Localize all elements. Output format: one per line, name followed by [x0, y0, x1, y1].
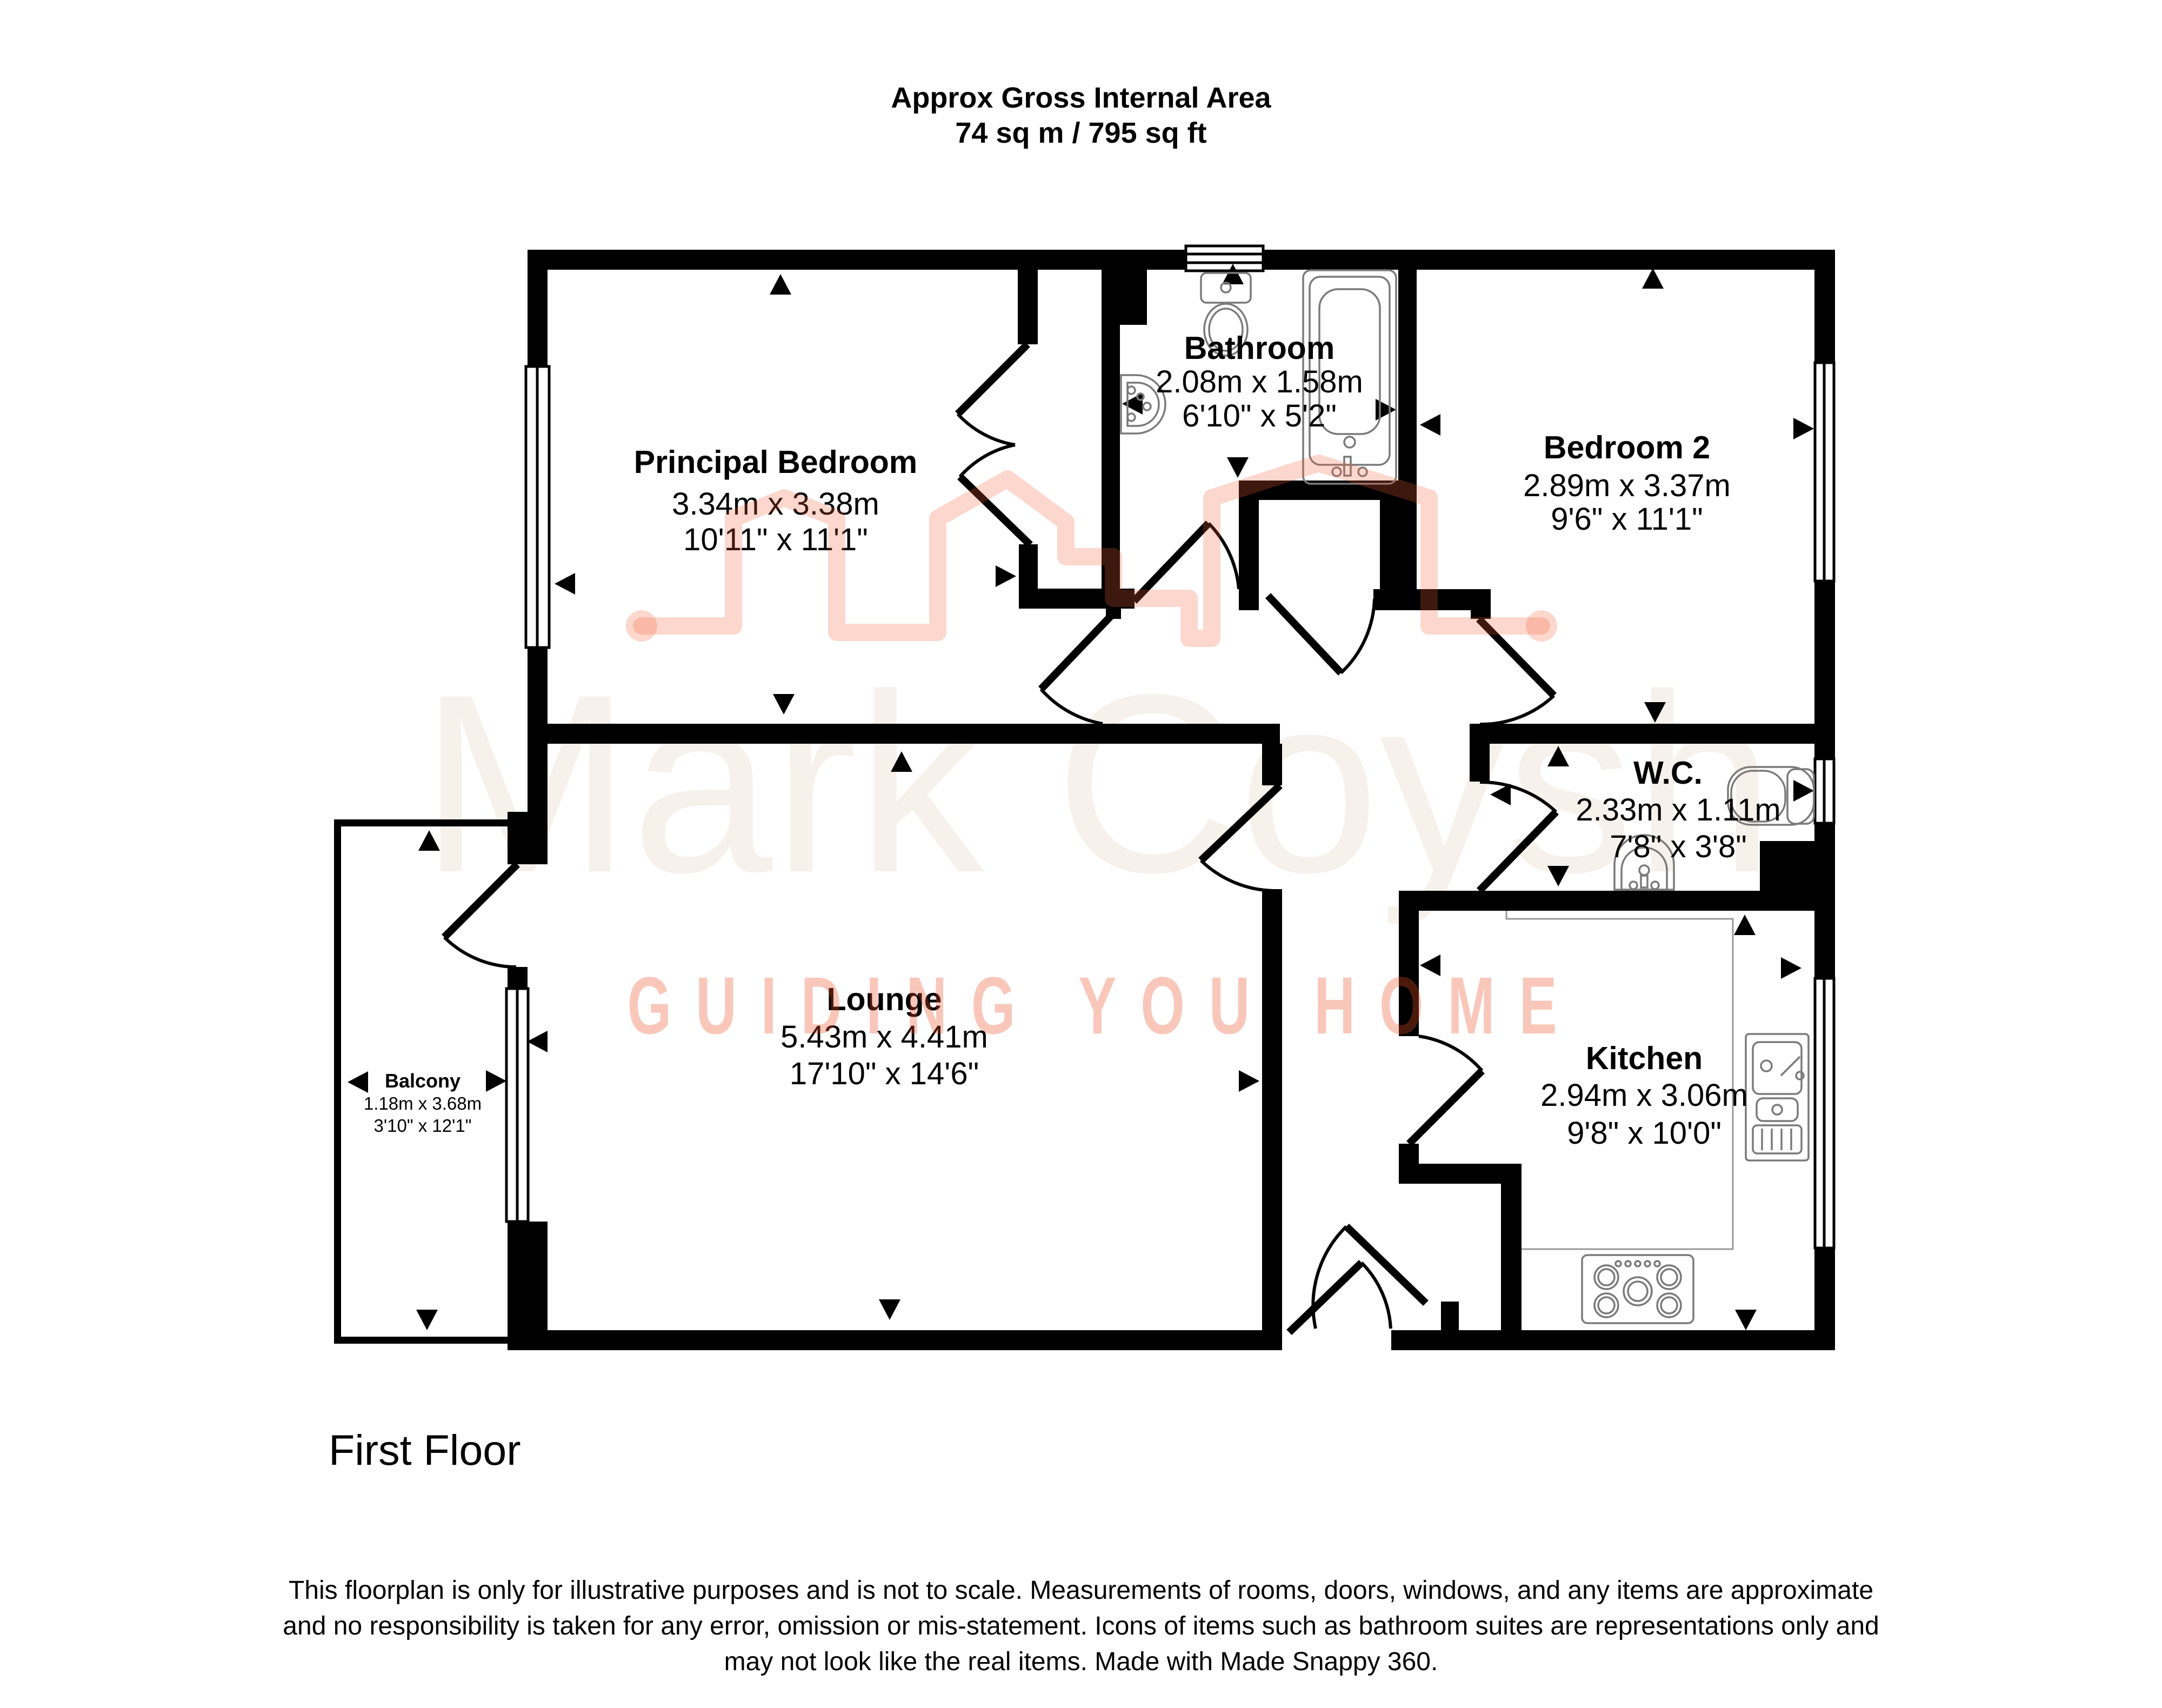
svg-text:may not look like the real ite: may not look like the real items. Made w… — [724, 1647, 1438, 1676]
svg-text:74 sq m / 795 sq ft: 74 sq m / 795 sq ft — [955, 117, 1206, 149]
svg-text:2.08m x 1.58m: 2.08m x 1.58m — [1156, 364, 1363, 399]
svg-text:1.18m x 3.68m: 1.18m x 3.68m — [364, 1093, 482, 1113]
svg-text:Bathroom: Bathroom — [1184, 330, 1335, 366]
svg-text:and no responsibility is taken: and no responsibility is taken for any e… — [283, 1612, 1879, 1640]
svg-text:Mark Coysh: Mark Coysh — [419, 642, 1774, 927]
svg-text:This floorplan is only for ill: This floorplan is only for illustrative … — [289, 1576, 1873, 1605]
svg-text:17'10" x 14'6": 17'10" x 14'6" — [790, 1056, 979, 1091]
svg-text:W.C.: W.C. — [1633, 755, 1703, 791]
svg-text:2.33m x 1.11m: 2.33m x 1.11m — [1576, 792, 1780, 828]
svg-text:2.89m x 3.37m: 2.89m x 3.37m — [1523, 468, 1731, 503]
svg-text:Principal Bedroom: Principal Bedroom — [634, 444, 918, 480]
svg-text:9'6" x 11'1": 9'6" x 11'1" — [1551, 502, 1703, 537]
svg-text:Bedroom 2: Bedroom 2 — [1544, 430, 1710, 465]
svg-text:First Floor: First Floor — [329, 1426, 521, 1474]
svg-text:GUIDING YOU HOME: GUIDING YOU HOME — [628, 961, 1582, 1051]
svg-text:6'10" x 5'2": 6'10" x 5'2" — [1182, 398, 1337, 433]
svg-text:Approx Gross Internal Area: Approx Gross Internal Area — [891, 82, 1271, 114]
svg-text:7'8" x 3'8": 7'8" x 3'8" — [1610, 829, 1747, 864]
svg-text:Balcony: Balcony — [385, 1070, 461, 1092]
svg-text:2.94m x 3.06m: 2.94m x 3.06m — [1540, 1078, 1748, 1113]
svg-text:3'10" x 12'1": 3'10" x 12'1" — [374, 1116, 472, 1136]
svg-text:9'8" x 10'0": 9'8" x 10'0" — [1567, 1116, 1721, 1151]
svg-text:Kitchen: Kitchen — [1586, 1040, 1703, 1076]
